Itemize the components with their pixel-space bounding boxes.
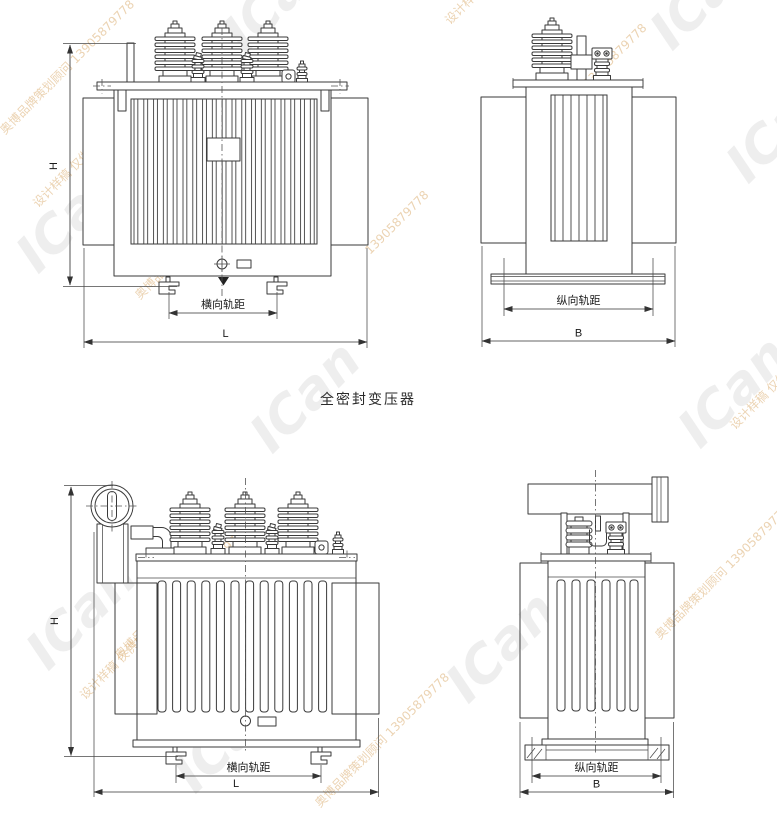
tap-changer-icon xyxy=(606,522,626,554)
side-radiator-panel xyxy=(83,98,114,245)
base-skid xyxy=(525,745,669,760)
dimension-track-gauge: 横向轨距 xyxy=(169,292,277,319)
side-radiator-panel xyxy=(632,97,676,243)
watermark-logo: ICan xyxy=(639,0,773,61)
hv-bushing-icon xyxy=(278,492,318,554)
dim-label-track: 纵向轨距 xyxy=(557,293,601,307)
tank-lid xyxy=(136,554,357,561)
hv-bushing-icon xyxy=(566,517,592,554)
dim-label-b: B xyxy=(575,328,582,340)
transformer-technical-drawing: ICan ICan ICan ICan ICan ICan ICan ICan … xyxy=(0,0,777,820)
wheel xyxy=(267,277,287,294)
side-radiator-panel xyxy=(331,98,368,245)
hanging-lug xyxy=(118,90,126,111)
dim-label-l: L xyxy=(222,328,228,340)
dim-label-track: 横向轨距 xyxy=(201,297,245,311)
wheel xyxy=(311,747,331,764)
lifting-bracket xyxy=(127,43,134,82)
bottom-plate xyxy=(133,740,360,747)
watermark-logo: ICan xyxy=(715,60,777,194)
lifting-lug xyxy=(282,70,295,83)
lv-bushing-icon xyxy=(265,523,279,554)
oil-pipe xyxy=(131,526,176,554)
dim-label-h: H xyxy=(49,617,61,625)
lv-bushing-icon xyxy=(211,523,225,554)
nameplate xyxy=(207,138,240,161)
watermark-text: 设计样稿 仅供校对 请勿外发 xyxy=(442,0,560,27)
hv-bushing-icon xyxy=(532,18,572,80)
tank-lid xyxy=(541,554,651,561)
side-view-top: 纵向轨距 B xyxy=(481,18,676,347)
base-rail xyxy=(491,274,665,284)
tank-lid xyxy=(513,80,643,87)
dim-label-b: B xyxy=(593,779,600,791)
drawing-title: 全密封变压器 xyxy=(320,391,416,407)
side-radiator-panel xyxy=(481,97,526,243)
dim-label-h: H xyxy=(48,162,60,170)
small-bushing-icon xyxy=(333,532,344,554)
radiator-fins xyxy=(551,95,607,241)
datum-triangle xyxy=(218,277,229,286)
dim-label-track: 纵向轨距 xyxy=(575,760,619,774)
front-view-top: H 横向轨距 L xyxy=(48,21,368,348)
hv-bushing-icon xyxy=(170,492,210,554)
dim-label-l: L xyxy=(233,778,239,790)
radiator-fins xyxy=(131,99,317,244)
tap-changer-icon xyxy=(592,48,612,80)
dim-label-track: 横向轨距 xyxy=(227,760,271,774)
watermark-logo: ICan xyxy=(15,547,149,681)
hanging-lug xyxy=(321,90,329,111)
drawing-canvas: ICan ICan ICan ICan ICan ICan ICan ICan … xyxy=(0,0,777,820)
small-bushing-icon xyxy=(297,61,308,83)
watermark-text: 13905879778 xyxy=(362,188,431,257)
bottom-plate xyxy=(542,739,648,745)
watermark-text: 奥博品牌策划顾问 13905879778 xyxy=(652,502,777,643)
hv-bushing-icon xyxy=(155,21,195,83)
lifting-lug xyxy=(315,541,328,554)
